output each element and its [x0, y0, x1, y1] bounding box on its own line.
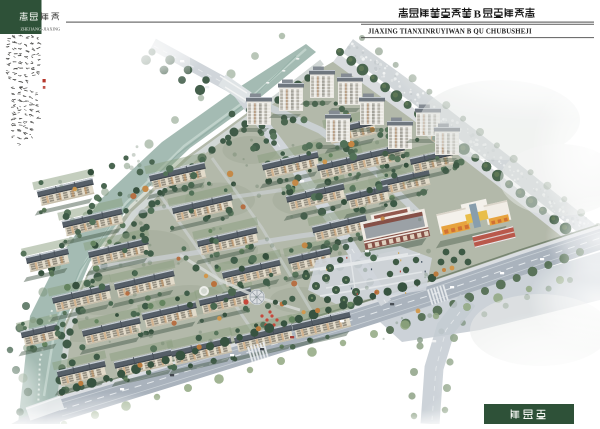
svg-text:JIAXING TIANXINRUYIWAN B QU CH: JIAXING TIANXINRUYIWAN B QU CHUBUSHEJI [368, 29, 532, 36]
svg-text:-JIAXING: -JIAXING [42, 27, 60, 32]
svg-text:B: B [474, 9, 482, 21]
svg-text:ZHEJIANG: ZHEJIANG [21, 27, 42, 32]
